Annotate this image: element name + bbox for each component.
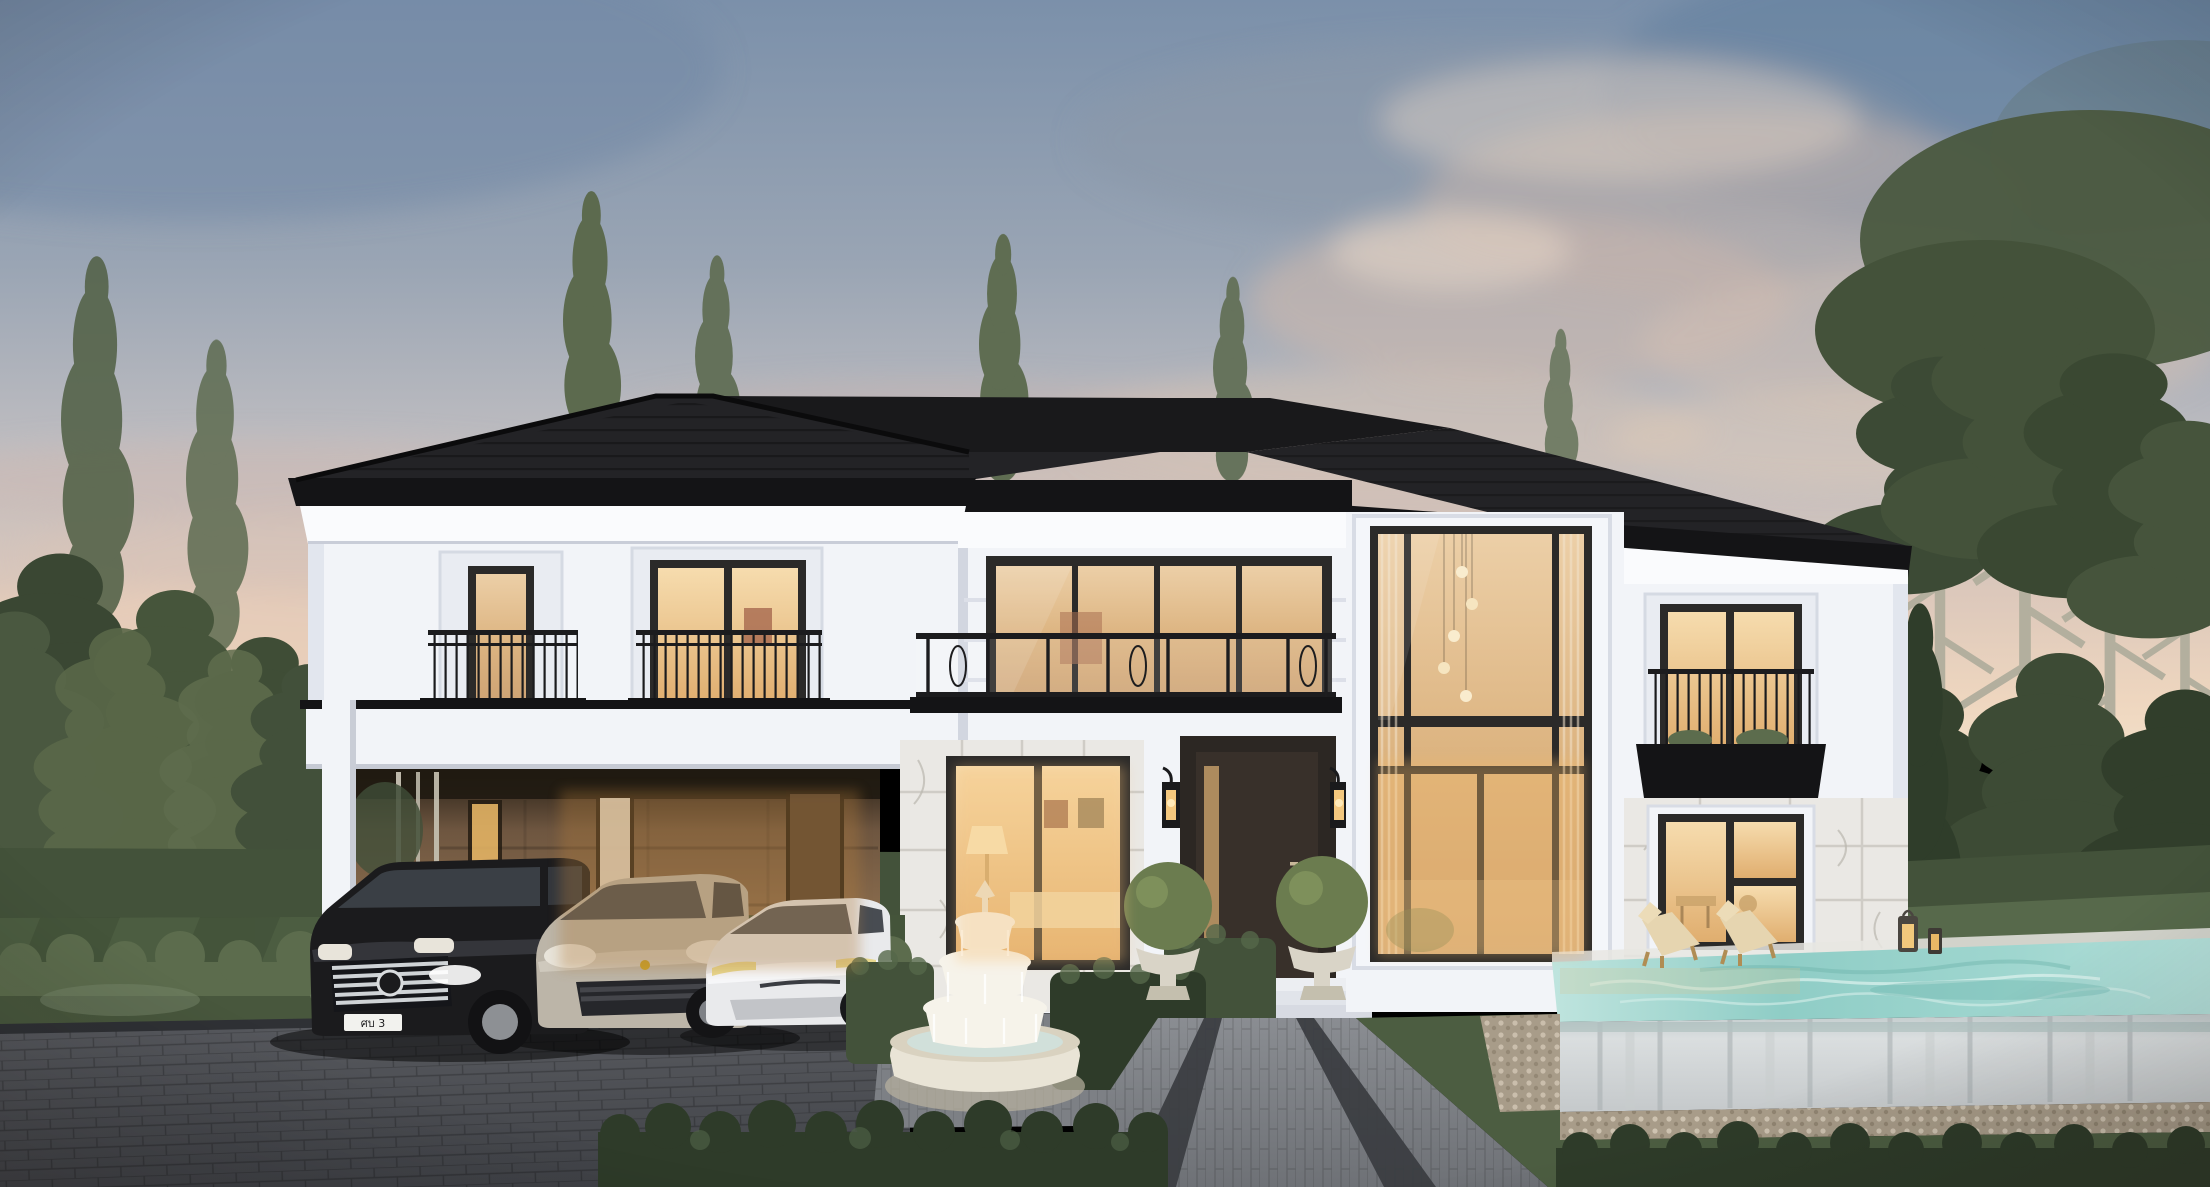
villa-rendering: ศบ 3 [0, 0, 2210, 1187]
vignette [0, 0, 2210, 1187]
scene-canvas: ศบ 3 [0, 0, 2210, 1187]
